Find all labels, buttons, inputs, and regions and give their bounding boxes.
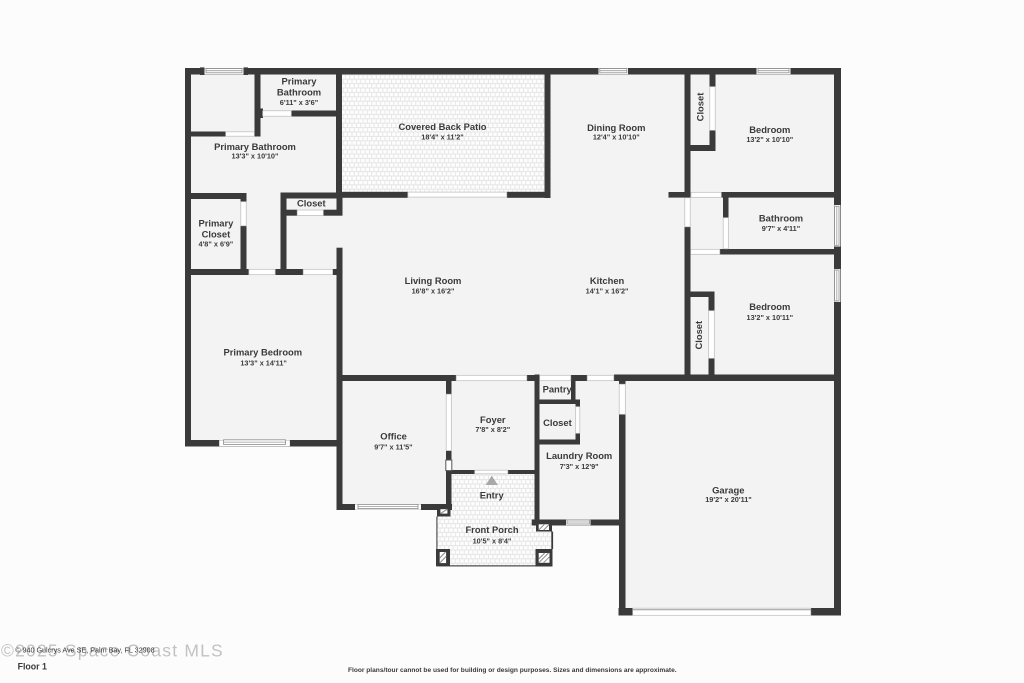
svg-text:Office: Office: [380, 431, 407, 442]
svg-text:7'8" x 8'2": 7'8" x 8'2": [475, 425, 510, 434]
svg-text:© 940 Gulcrys Ave SE, Palm Bay: © 940 Gulcrys Ave SE, Palm Bay, FL 32908: [15, 645, 154, 654]
svg-text:6'11" x 3'6": 6'11" x 3'6": [280, 98, 318, 107]
svg-text:9'7" x 11'5": 9'7" x 11'5": [374, 443, 412, 452]
svg-text:Garage: Garage: [712, 484, 744, 495]
svg-text:14'1" x 16'2": 14'1" x 16'2": [586, 287, 629, 296]
svg-text:Bathroom: Bathroom: [277, 87, 321, 98]
svg-text:18'4" x 11'2": 18'4" x 11'2": [421, 133, 463, 142]
svg-text:Closet: Closet: [694, 93, 705, 122]
svg-text:Closet: Closet: [693, 321, 704, 350]
svg-text:Front Porch: Front Porch: [465, 524, 518, 535]
svg-text:19'2" x 20'11": 19'2" x 20'11": [705, 495, 752, 504]
svg-text:16'8" x 16'2": 16'8" x 16'2": [412, 287, 455, 296]
svg-text:Primary Bedroom: Primary Bedroom: [223, 347, 302, 358]
svg-text:13'2" x 10'11": 13'2" x 10'11": [747, 313, 794, 322]
svg-text:Laundry Room: Laundry Room: [546, 450, 612, 461]
svg-text:Dining Room: Dining Room: [587, 122, 645, 133]
svg-text:13'3" x 10'10": 13'3" x 10'10": [232, 152, 279, 161]
svg-text:Primary: Primary: [198, 218, 234, 229]
svg-text:12'4" x 10'10": 12'4" x 10'10": [593, 133, 640, 142]
svg-text:Floor 1: Floor 1: [18, 661, 47, 671]
svg-text:10'5" x 8'4": 10'5" x 8'4": [473, 536, 512, 545]
svg-text:4'8" x 6'9": 4'8" x 6'9": [199, 239, 234, 248]
svg-text:Entry: Entry: [480, 489, 505, 500]
svg-text:Closet: Closet: [297, 197, 326, 208]
svg-text:9'7" x 4'11": 9'7" x 4'11": [762, 224, 800, 233]
svg-text:Floor plans/tour cannot be use: Floor plans/tour cannot be used for buil…: [348, 667, 677, 674]
svg-text:Closet: Closet: [543, 417, 572, 428]
svg-text:Bedroom: Bedroom: [749, 301, 790, 312]
svg-text:Kitchen: Kitchen: [590, 275, 625, 286]
svg-text:13'2" x 10'10": 13'2" x 10'10": [746, 135, 793, 144]
svg-text:Living Room: Living Room: [405, 275, 462, 286]
svg-text:Closet: Closet: [202, 228, 231, 239]
svg-text:Covered Back Patio: Covered Back Patio: [398, 121, 486, 132]
svg-text:7'3" x 12'9": 7'3" x 12'9": [560, 462, 599, 471]
svg-text:Bedroom: Bedroom: [749, 124, 790, 135]
svg-text:Primary Bathroom: Primary Bathroom: [214, 141, 296, 152]
svg-text:Foyer: Foyer: [480, 414, 506, 425]
svg-text:Pantry: Pantry: [543, 384, 573, 395]
svg-text:Bathroom: Bathroom: [759, 212, 803, 223]
svg-text:Primary: Primary: [282, 76, 318, 87]
svg-text:13'3" x 14'11": 13'3" x 14'11": [240, 358, 287, 367]
